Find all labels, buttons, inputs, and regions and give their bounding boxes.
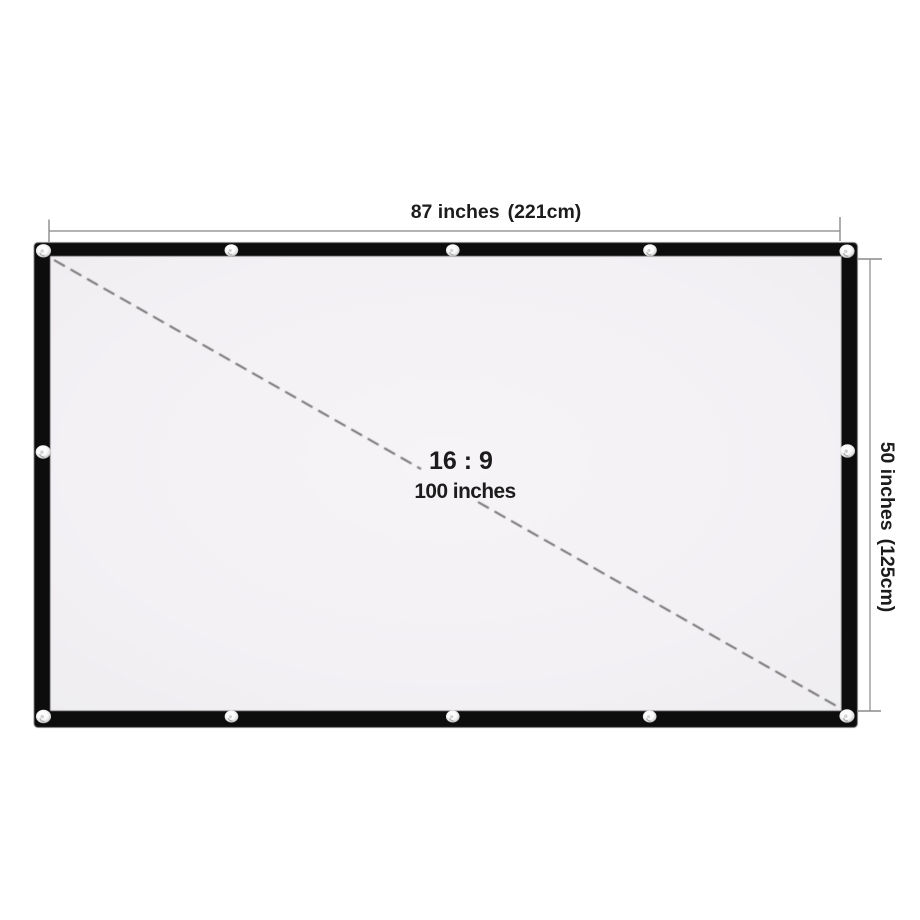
svg-text:16 : 9: 16 : 9: [429, 447, 493, 475]
svg-text:100 inches: 100 inches: [414, 480, 515, 503]
svg-text:87 inches(221cm): 87 inches(221cm): [411, 201, 582, 223]
svg-text:50 inches(125cm): 50 inches(125cm): [876, 442, 898, 613]
